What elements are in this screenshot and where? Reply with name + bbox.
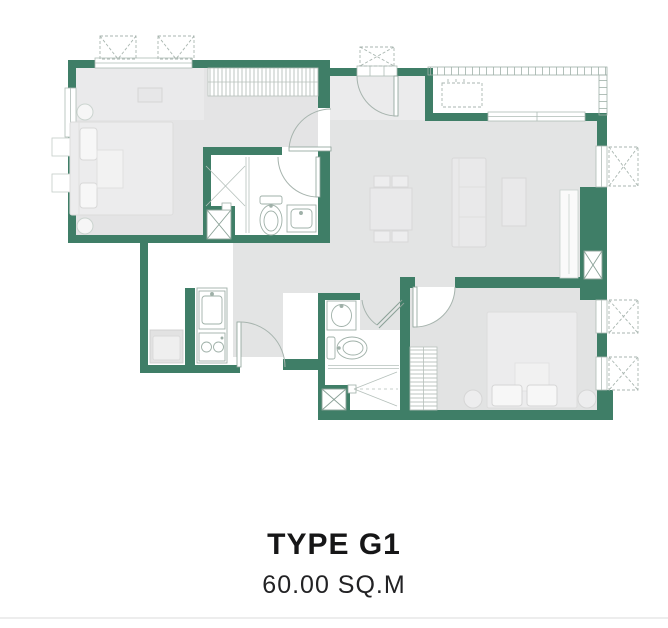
nightstand-1b	[77, 218, 93, 234]
bottom-divider	[0, 617, 668, 619]
ac-unit-top-left-1	[100, 36, 136, 59]
shaft-bathroom-2	[322, 389, 346, 410]
balcony-bench-dashed	[442, 79, 482, 107]
toilet-1	[260, 196, 282, 235]
living-right-window	[596, 146, 607, 187]
floorplan-drawing	[0, 0, 668, 500]
bedroom-2-right-window-upper	[596, 300, 607, 333]
nightstand-1a	[77, 104, 93, 120]
bed-1-blanket	[97, 150, 123, 188]
floorplan-page: TYPE G1 60.00 SQ.M	[0, 0, 668, 628]
bedroom-2-right-window-lower	[596, 357, 607, 390]
sink-vanity-2	[327, 301, 356, 330]
toilet-2	[327, 337, 367, 359]
bedroom-1-top-window	[95, 58, 192, 68]
plan-area-label: 60.00 SQ.M	[0, 571, 668, 600]
sofa	[452, 158, 486, 247]
bed-2-pillow-2	[527, 385, 557, 406]
ac-unit-right-living	[609, 147, 638, 186]
wardrobe-bedroom-1	[208, 68, 318, 96]
kitchen-sink	[199, 291, 225, 329]
entry-floor-light-patch	[330, 76, 425, 120]
coffee-table	[502, 178, 526, 226]
balcony-sliding-window	[488, 112, 585, 121]
tall-cabinet-right	[560, 190, 578, 278]
entrance-threshold	[357, 66, 397, 76]
bed-1-pillow-1	[80, 128, 97, 160]
sink-vanity-1	[287, 205, 316, 232]
tv-cabinet-bedroom-1	[138, 88, 162, 102]
ac-unit-top-left-2	[158, 36, 194, 59]
shaft-bathroom-1	[207, 210, 231, 239]
balcony-railing	[428, 67, 607, 115]
two-burner-stove	[199, 333, 225, 361]
wardrobe-bedroom-2	[410, 347, 437, 410]
nightstand-2a	[464, 390, 482, 408]
ac-unit-entrance	[360, 47, 394, 66]
ac-unit-bedroom2-lower	[609, 357, 638, 390]
ac-unit-bedroom2-upper	[609, 300, 638, 333]
bed-2-pillow-1	[492, 385, 522, 406]
nightstand-2b	[578, 390, 596, 408]
washing-machine	[150, 330, 183, 363]
plan-type-title: TYPE G1	[0, 528, 668, 562]
bathroom-1-door	[278, 157, 320, 197]
bed-1-pillow-2	[80, 183, 97, 208]
shaft-right-wall	[584, 251, 602, 279]
plan-caption: TYPE G1 60.00 SQ.M	[0, 528, 668, 600]
